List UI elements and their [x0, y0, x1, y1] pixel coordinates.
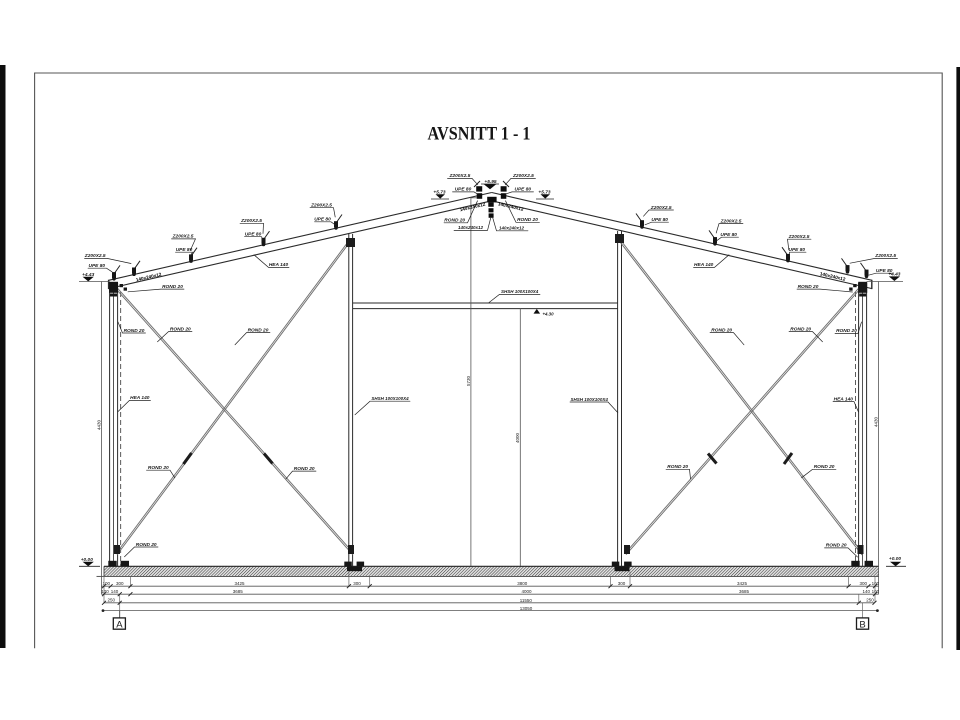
- svg-text:300: 300: [860, 581, 868, 586]
- svg-text:300: 300: [353, 581, 361, 586]
- svg-text:3425: 3425: [737, 581, 748, 586]
- svg-text:3685: 3685: [233, 589, 244, 594]
- svg-text:140x240x12: 140x240x12: [458, 225, 484, 230]
- svg-text:5730: 5730: [466, 375, 471, 386]
- svg-text:100: 100: [102, 581, 110, 586]
- svg-text:+4.30: +4.30: [542, 311, 554, 316]
- svg-text:300: 300: [618, 581, 626, 586]
- svg-text:B: B: [859, 619, 865, 630]
- svg-text:11550: 11550: [520, 598, 533, 603]
- svg-text:SHSH 100X100X4: SHSH 100X100X4: [571, 397, 609, 402]
- svg-text:3800: 3800: [517, 581, 528, 586]
- svg-text:4000: 4000: [515, 432, 520, 443]
- svg-text:13050: 13050: [520, 606, 533, 611]
- svg-text:4000: 4000: [521, 589, 532, 594]
- svg-text:140: 140: [862, 589, 870, 594]
- svg-text:A: A: [116, 619, 123, 630]
- svg-text:140x240x12: 140x240x12: [499, 226, 525, 231]
- svg-text:3425: 3425: [234, 581, 245, 586]
- svg-text:3685: 3685: [739, 589, 750, 594]
- svg-text:SHSH 100X100X4: SHSH 100X100X4: [371, 396, 409, 401]
- svg-text:250: 250: [866, 597, 874, 602]
- svg-text:AVSNITT 1 - 1: AVSNITT 1 - 1: [428, 124, 531, 145]
- svg-text:140: 140: [111, 589, 119, 594]
- svg-text:SHSH 100X100X4: SHSH 100X100X4: [501, 289, 539, 294]
- svg-text:4430: 4430: [96, 419, 101, 430]
- svg-text:250: 250: [108, 597, 116, 602]
- svg-text:+0.00: +0.00: [889, 556, 901, 562]
- svg-text:300: 300: [116, 581, 124, 586]
- svg-text:4430: 4430: [874, 416, 879, 427]
